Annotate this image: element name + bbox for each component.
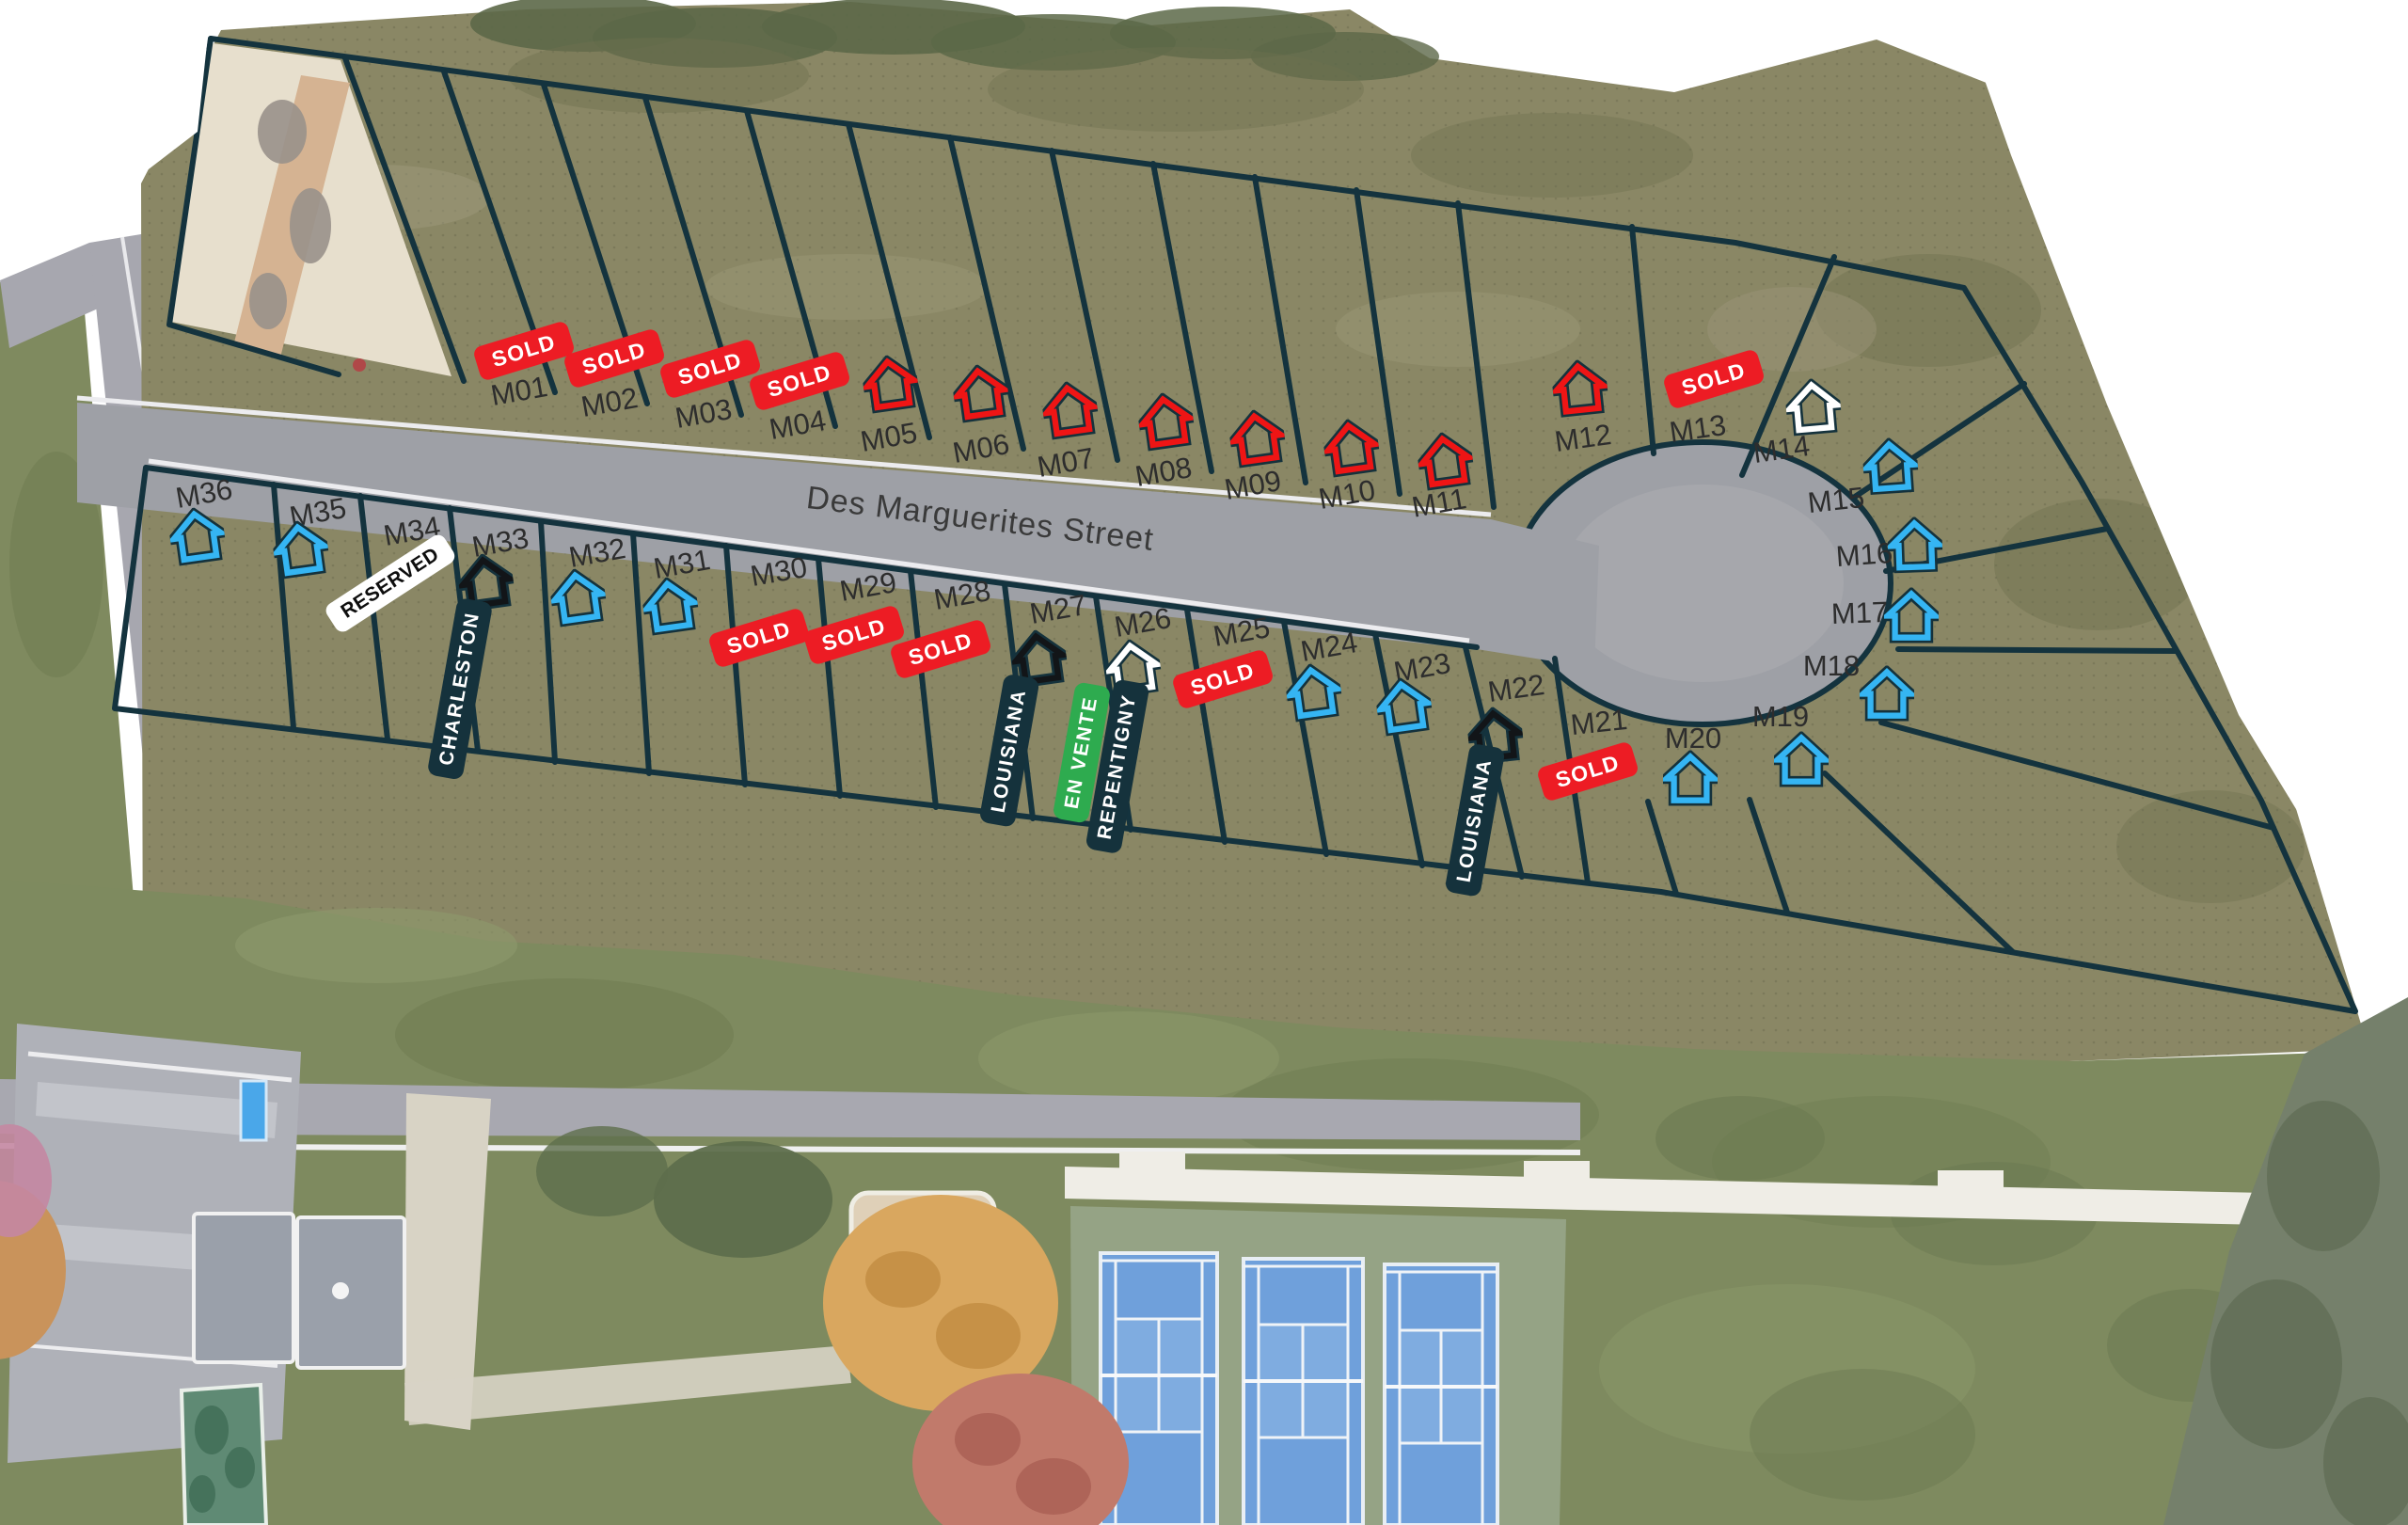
lot-m22-tag-louisiana[interactable]: LOUISIANA bbox=[1444, 743, 1505, 898]
site-map: Des Marguerites Street M01SOLDM02SOLDM03… bbox=[0, 0, 2408, 1525]
lot-m32-blue-house-icon[interactable] bbox=[547, 565, 610, 633]
lot-m10-red-house-icon[interactable] bbox=[1321, 416, 1383, 484]
lot-m15-blue-house-icon[interactable] bbox=[1861, 437, 1920, 501]
lot-m20-blue-house-icon[interactable] bbox=[1663, 751, 1718, 812]
lot-m14-white-house-icon[interactable] bbox=[1783, 376, 1843, 442]
lot-m24-blue-house-icon[interactable] bbox=[1283, 660, 1345, 728]
lot-m05-label[interactable]: M05 bbox=[858, 416, 920, 459]
lot-m16-blue-house-icon[interactable] bbox=[1887, 516, 1943, 580]
lot-m04-label[interactable]: M04 bbox=[767, 404, 829, 447]
lot-m17-label[interactable]: M17 bbox=[1830, 596, 1889, 631]
lot-m05-red-house-icon[interactable] bbox=[860, 352, 922, 420]
lots-layer: M01SOLDM02SOLDM03SOLDM04SOLDM05 M06 M07 … bbox=[0, 0, 2408, 1525]
lot-m35-blue-house-icon[interactable] bbox=[270, 517, 332, 585]
lot-m25-sold-badge[interactable]: SOLD bbox=[1171, 648, 1275, 710]
lot-m29-label[interactable]: M29 bbox=[837, 565, 899, 609]
lot-m12-label[interactable]: M12 bbox=[1553, 418, 1614, 459]
lot-m11-red-house-icon[interactable] bbox=[1415, 429, 1477, 497]
lot-m28-sold-badge[interactable]: SOLD bbox=[889, 618, 992, 680]
lot-m17-blue-house-icon[interactable] bbox=[1884, 588, 1939, 649]
lot-m19-label[interactable]: M19 bbox=[1752, 700, 1809, 734]
lot-m29-sold-badge[interactable]: SOLD bbox=[802, 604, 906, 666]
lot-m21-label[interactable]: M21 bbox=[1569, 703, 1629, 742]
lot-m18-blue-house-icon[interactable] bbox=[1860, 666, 1914, 727]
lot-m08-red-house-icon[interactable] bbox=[1135, 389, 1197, 457]
lot-m12-red-house-icon[interactable] bbox=[1550, 357, 1610, 424]
lot-m13-sold-badge[interactable]: SOLD bbox=[1662, 348, 1766, 410]
lot-m21-sold-badge[interactable]: SOLD bbox=[1536, 740, 1640, 802]
lot-m03-sold-badge[interactable]: SOLD bbox=[658, 338, 762, 400]
lot-m06-red-house-icon[interactable] bbox=[950, 361, 1012, 429]
lot-m18-label[interactable]: M18 bbox=[1803, 649, 1860, 683]
lot-m04-sold-badge[interactable]: SOLD bbox=[748, 350, 851, 412]
lot-m33-tag-charleston[interactable]: CHARLESTON bbox=[427, 596, 494, 780]
lot-m02-sold-badge[interactable]: SOLD bbox=[562, 327, 666, 389]
lot-m23-blue-house-icon[interactable] bbox=[1373, 675, 1435, 742]
lot-m30-sold-badge[interactable]: SOLD bbox=[707, 607, 811, 669]
lot-m03-label[interactable]: M03 bbox=[673, 392, 735, 436]
lot-m09-red-house-icon[interactable] bbox=[1227, 406, 1289, 474]
lot-m13-label[interactable]: M13 bbox=[1668, 408, 1729, 450]
lot-m27-label[interactable]: M27 bbox=[1027, 588, 1089, 631]
lot-m08-label[interactable]: M08 bbox=[1133, 451, 1195, 494]
lot-m19-blue-house-icon[interactable] bbox=[1774, 732, 1829, 793]
lot-m31-blue-house-icon[interactable] bbox=[640, 574, 702, 642]
lot-m36-blue-house-icon[interactable] bbox=[166, 504, 229, 572]
lot-m06-label[interactable]: M06 bbox=[950, 427, 1012, 470]
lot-m30-label[interactable]: M30 bbox=[748, 550, 810, 594]
lot-m22-label[interactable]: M22 bbox=[1486, 668, 1547, 709]
lot-m07-label[interactable]: M07 bbox=[1035, 441, 1097, 485]
lot-m27-tag-louisiana[interactable]: LOUISIANA bbox=[978, 674, 1039, 828]
lot-m16-label[interactable]: M16 bbox=[1835, 536, 1894, 574]
lot-m28-label[interactable]: M28 bbox=[931, 574, 993, 617]
lot-m07-red-house-icon[interactable] bbox=[1039, 378, 1101, 446]
lot-m25-label[interactable]: M25 bbox=[1211, 611, 1273, 654]
lot-m15-label[interactable]: M15 bbox=[1806, 481, 1866, 520]
lot-m02-label[interactable]: M02 bbox=[578, 381, 641, 424]
